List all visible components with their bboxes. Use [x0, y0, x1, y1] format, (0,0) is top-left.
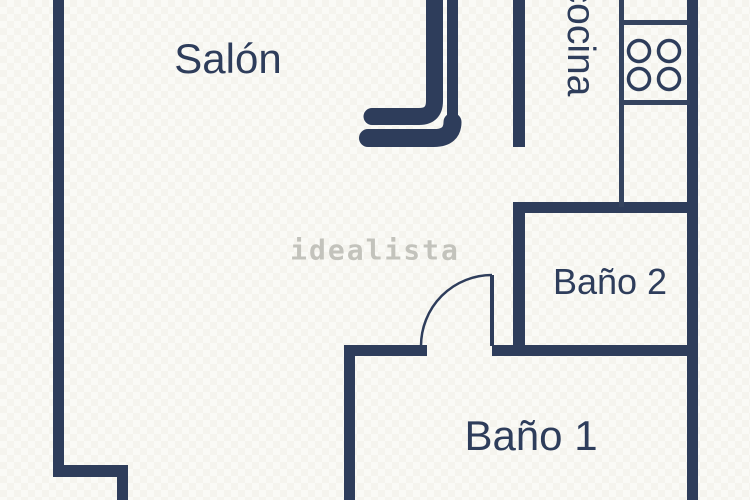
floor-plan: Salón cocina Baño 2 Baño 1 idealista	[0, 0, 750, 500]
bano1-label: Baño 1	[464, 412, 597, 460]
bano2-label: Baño 2	[553, 261, 667, 303]
cocina-label: cocina	[558, 0, 602, 96]
sliding-door-inner-stroke	[372, 0, 435, 117]
burner-bottom-right	[659, 69, 680, 90]
burner-bottom-left	[629, 69, 650, 90]
burner-top-left	[629, 41, 650, 62]
salon-label: Salón	[174, 35, 281, 83]
idealista-watermark: idealista	[290, 234, 460, 267]
stove-burners-icon	[629, 41, 680, 90]
burner-top-right	[659, 41, 680, 62]
door-swing-arc	[421, 275, 492, 346]
